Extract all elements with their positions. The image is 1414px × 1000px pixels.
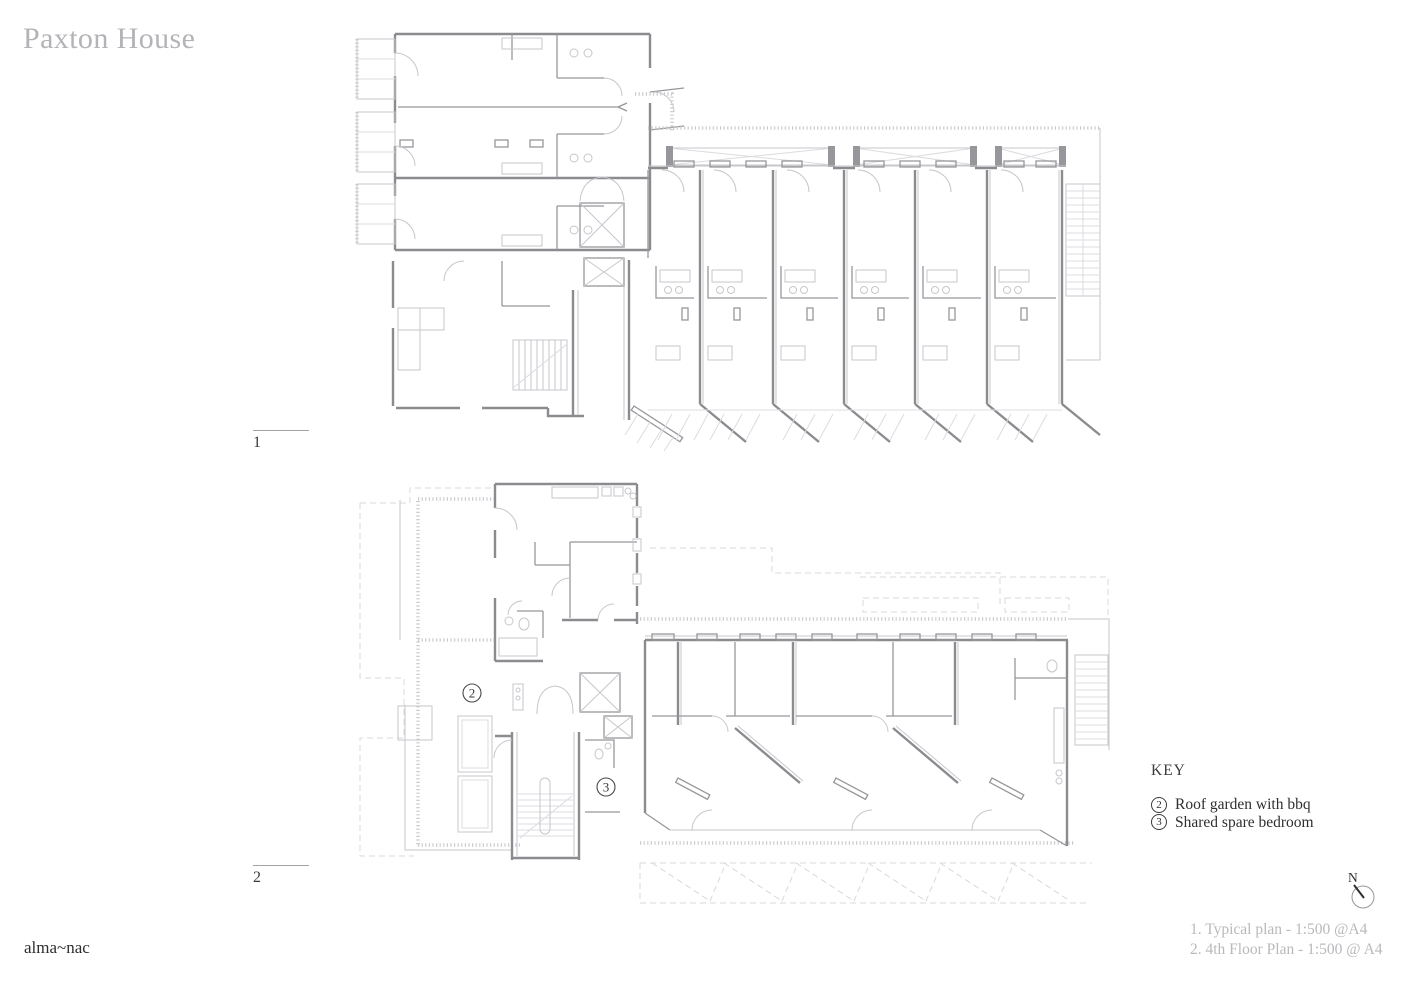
- left-block-walls: [395, 34, 650, 250]
- figure-2-label: 2: [253, 865, 309, 887]
- figure-1-number: 1: [253, 434, 309, 452]
- north-compass: N: [1336, 864, 1386, 914]
- figure-1-rule: [253, 430, 309, 431]
- window-bays: [666, 146, 1066, 167]
- key-badge-3: 3: [1151, 814, 1167, 830]
- spare-bedroom-marker: 3: [597, 778, 615, 796]
- roof-garden-marker-number: 2: [469, 686, 476, 701]
- north-label: N: [1348, 870, 1358, 885]
- spare-bedroom-marker-number: 3: [603, 780, 610, 795]
- key-item-spare-bedroom: 3 Shared spare bedroom: [1151, 814, 1314, 832]
- page-title: Paxton House: [23, 22, 195, 56]
- left-block-balconies: [357, 39, 395, 244]
- core-stair: [494, 732, 579, 860]
- right-wing-walls: [648, 161, 1100, 442]
- studio-logo: alma~nac: [24, 938, 90, 958]
- drawing-sheet: { "header": { "title": "Paxton House" },…: [0, 0, 1414, 1000]
- penthouse-fittings: [495, 487, 641, 656]
- right-wing-interiors: [656, 170, 1056, 360]
- roof-garden: [398, 499, 520, 850]
- right-end-unit: [1015, 658, 1067, 784]
- key-badge-2: 2: [1151, 797, 1167, 813]
- key-item-roof-garden: 2 Roof garden with bbq: [1151, 796, 1314, 814]
- caption-typical-plan: 1. Typical plan - 1:500 @A4: [1190, 920, 1383, 940]
- penthouse-walls: [495, 484, 637, 661]
- caption-fourth-floor-plan: 2. 4th Floor Plan - 1:500 @ A4: [1190, 940, 1383, 960]
- stair-core: [513, 260, 629, 420]
- key-heading: KEY: [1151, 762, 1314, 780]
- lower-left-unit: [393, 261, 584, 416]
- figure-2-rule: [253, 865, 309, 866]
- typical-plan-drawing: [352, 8, 1108, 454]
- corridor-neck: [635, 88, 684, 132]
- figure-1-label: 1: [253, 430, 309, 452]
- left-block-interiors: [395, 34, 622, 250]
- core-balcony: [625, 406, 683, 451]
- right-external-stair-p2: [1068, 619, 1109, 750]
- core-lifts: [513, 673, 632, 738]
- fourth-floor-plan-drawing: 2: [352, 478, 1114, 908]
- figure-2-number: 2: [253, 869, 309, 887]
- key-legend: KEY 2 Roof garden with bbq 3 Shared spar…: [1151, 762, 1314, 831]
- right-wing-walls-p2: [640, 619, 1075, 846]
- elevator-shafts: [580, 177, 624, 286]
- key-label-spare-bedroom: Shared spare bedroom: [1175, 814, 1314, 832]
- key-label-roof-garden: Roof garden with bbq: [1175, 796, 1311, 814]
- roof-garden-marker: 2: [463, 684, 481, 702]
- spare-bedroom-walls: [585, 740, 620, 812]
- plan-captions: 1. Typical plan - 1:500 @A4 2. 4th Floor…: [1190, 920, 1383, 959]
